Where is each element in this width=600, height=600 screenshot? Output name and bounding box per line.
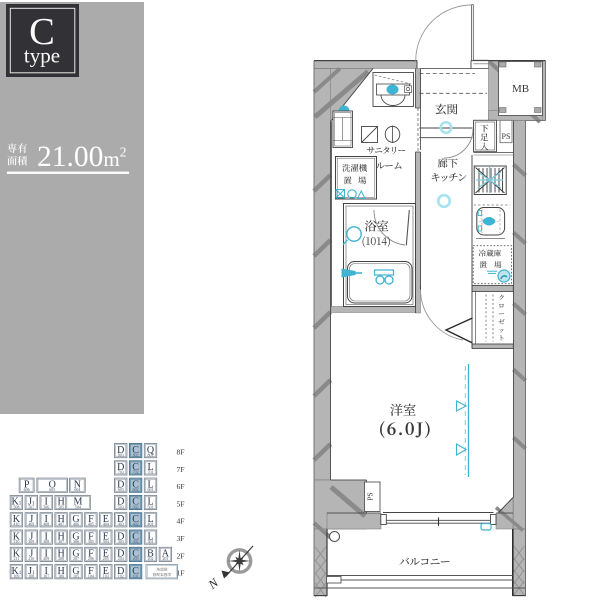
svg-text:205: 205 [103,556,109,561]
svg-text:306: 306 [73,539,79,544]
svg-text:201: 201 [162,556,168,561]
svg-text:206: 206 [88,556,94,561]
svg-text:604: 604 [74,487,80,492]
svg-text:701: 701 [148,470,154,475]
svg-text:211: 211 [13,556,19,561]
svg-text:203: 203 [133,556,139,561]
svg-text:301: 301 [148,539,154,544]
svg-text:505: 505 [58,504,64,509]
svg-text:703: 703 [118,470,124,475]
svg-text:8F: 8F [176,448,184,457]
svg-text:105: 105 [73,574,79,579]
svg-text:304: 304 [103,539,109,544]
svg-text:605: 605 [49,487,55,492]
svg-text:307: 307 [58,539,64,544]
svg-text:408: 408 [43,522,49,527]
svg-text:type: type [24,44,60,68]
svg-text:501: 501 [148,504,154,509]
svg-text:3F: 3F [176,534,184,543]
svg-text:108: 108 [28,574,34,579]
svg-text:PS: PS [365,492,374,500]
svg-text:2F: 2F [176,551,184,560]
svg-text:308: 308 [43,539,49,544]
svg-text:803: 803 [118,452,124,457]
svg-text:506: 506 [43,504,49,509]
svg-text:103: 103 [103,574,109,579]
svg-text:406: 406 [73,522,79,527]
svg-text:402: 402 [133,522,139,527]
svg-text:210: 210 [28,556,34,561]
svg-text:208: 208 [58,556,64,561]
svg-text:MB: MB [512,83,529,95]
svg-text:603: 603 [118,487,124,492]
svg-text:508: 508 [13,504,19,509]
svg-text:602: 602 [133,487,139,492]
svg-text:410: 410 [13,522,19,527]
svg-text:310: 310 [13,539,19,544]
svg-text:PS: PS [502,132,511,141]
svg-text:6F: 6F [176,482,184,491]
svg-text:502: 502 [133,504,139,509]
svg-text:303: 303 [118,539,124,544]
svg-text:107: 107 [43,574,49,579]
svg-text:309: 309 [28,539,34,544]
svg-text:5F: 5F [176,499,184,508]
svg-text:405: 405 [88,522,94,527]
svg-text:507: 507 [28,504,34,509]
svg-text:207: 207 [73,556,79,561]
svg-text:4F: 4F [176,517,184,526]
svg-text:801: 801 [148,452,154,457]
svg-text:504: 504 [75,504,81,509]
svg-text:606: 606 [24,487,30,492]
svg-text:409: 409 [28,522,34,527]
svg-text:204: 204 [118,556,124,561]
svg-text:202: 202 [148,556,154,561]
svg-text:109: 109 [13,574,19,579]
svg-text:702: 702 [133,470,139,475]
svg-text:403: 403 [118,522,124,527]
svg-text:404: 404 [103,522,109,527]
svg-text:802: 802 [133,452,139,457]
svg-text:7F: 7F [176,465,184,474]
svg-text:601: 601 [148,487,154,492]
svg-text:503: 503 [118,504,124,509]
svg-text:104: 104 [88,574,94,579]
svg-text:401: 401 [148,522,154,527]
svg-text:209: 209 [43,556,49,561]
svg-text:302: 302 [133,539,139,544]
svg-text:102: 102 [118,574,124,579]
svg-text:106: 106 [58,574,64,579]
svg-text:101: 101 [133,574,139,579]
svg-text:407: 407 [58,522,64,527]
svg-text:305: 305 [88,539,94,544]
